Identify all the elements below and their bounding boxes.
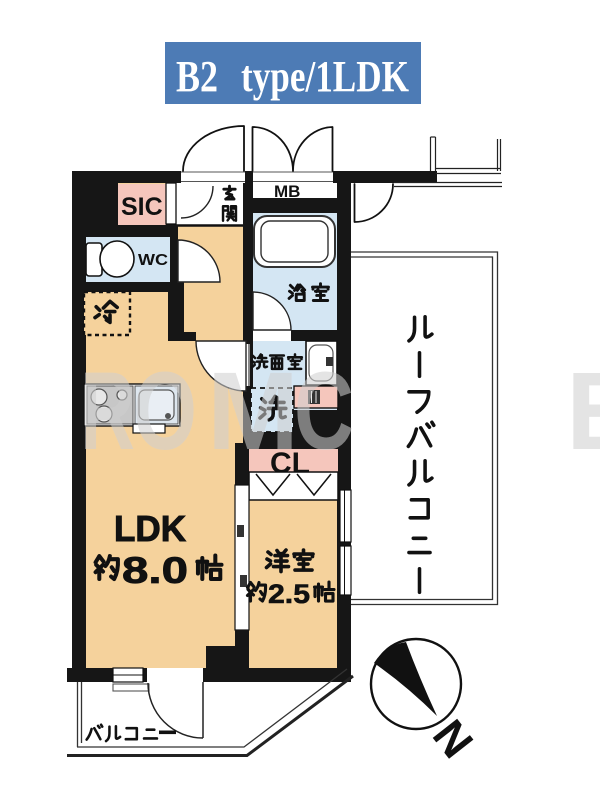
svg-text:2.5: 2.5 — [268, 579, 310, 609]
svg-text:R: R — [80, 350, 135, 473]
svg-text:B2: B2 — [176, 52, 218, 101]
svg-text:8.0: 8.0 — [122, 550, 188, 591]
svg-text:LDK: LDK — [114, 508, 186, 549]
svg-text:WC: WC — [138, 252, 169, 269]
svg-text:M: M — [207, 350, 299, 473]
svg-text:C: C — [294, 350, 354, 473]
svg-text:type/1LDK: type/1LDK — [241, 52, 409, 101]
svg-text:SIC: SIC — [121, 193, 163, 221]
svg-text:O: O — [133, 350, 197, 473]
svg-text:MB: MB — [274, 182, 300, 201]
svg-text:E: E — [566, 350, 600, 473]
